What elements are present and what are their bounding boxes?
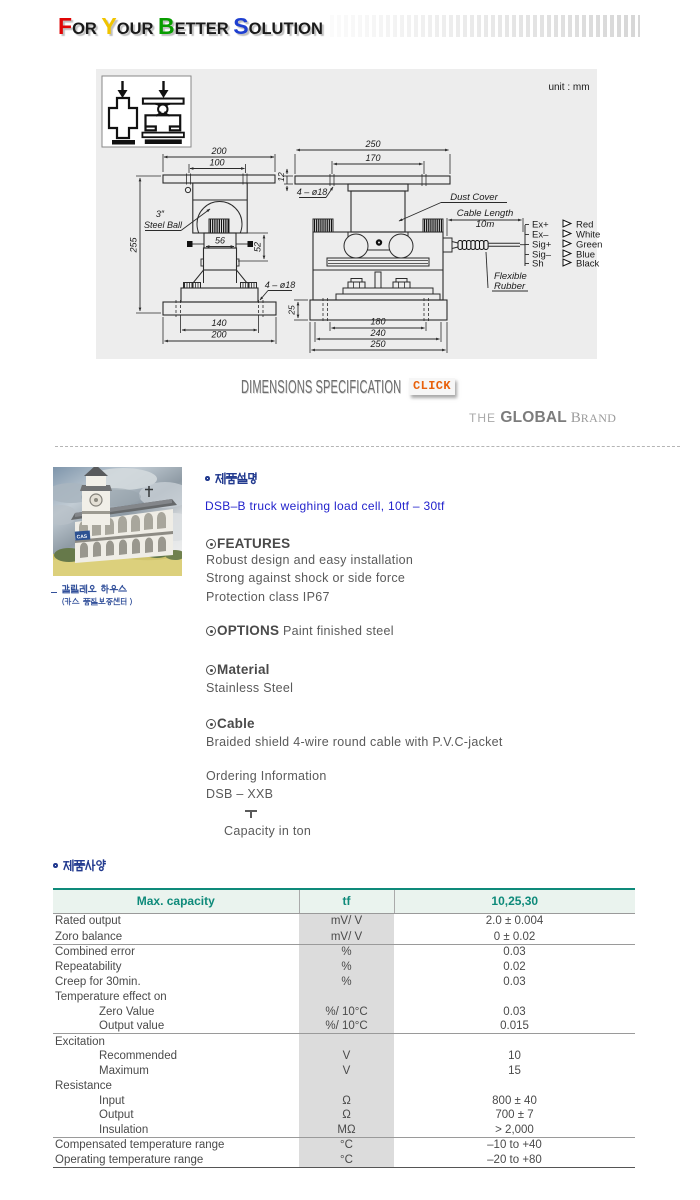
svg-text:100: 100 — [209, 158, 224, 168]
svg-text:Cable Length: Cable Length — [457, 208, 514, 219]
svg-text:180: 180 — [370, 317, 385, 327]
svg-text:250: 250 — [364, 139, 380, 149]
svg-text:56: 56 — [215, 236, 225, 246]
svg-text:Sh: Sh — [532, 259, 544, 270]
svg-text:Black: Black — [576, 259, 599, 270]
svg-text:255: 255 — [129, 237, 139, 254]
svg-text:unit : mm: unit : mm — [548, 82, 589, 93]
svg-text:52: 52 — [253, 242, 263, 252]
svg-text:12: 12 — [276, 172, 286, 182]
svg-text:4 – ø18: 4 – ø18 — [265, 280, 296, 290]
svg-text:Dust Cover: Dust Cover — [450, 192, 498, 203]
svg-text:Rubber: Rubber — [494, 281, 526, 292]
svg-text:240: 240 — [369, 328, 385, 338]
svg-text:3″: 3″ — [156, 209, 165, 219]
svg-text:170: 170 — [365, 153, 380, 163]
svg-text:25: 25 — [287, 305, 297, 316]
svg-text:4 – ø18: 4 – ø18 — [297, 187, 328, 197]
svg-text:CAS: CAS — [76, 534, 88, 541]
svg-text:250: 250 — [369, 339, 385, 349]
svg-text:Steel Ball: Steel Ball — [144, 220, 183, 230]
svg-text:140: 140 — [211, 318, 226, 328]
svg-text:200: 200 — [210, 146, 226, 156]
svg-text:200: 200 — [210, 330, 226, 340]
svg-text:10m: 10m — [476, 219, 495, 230]
